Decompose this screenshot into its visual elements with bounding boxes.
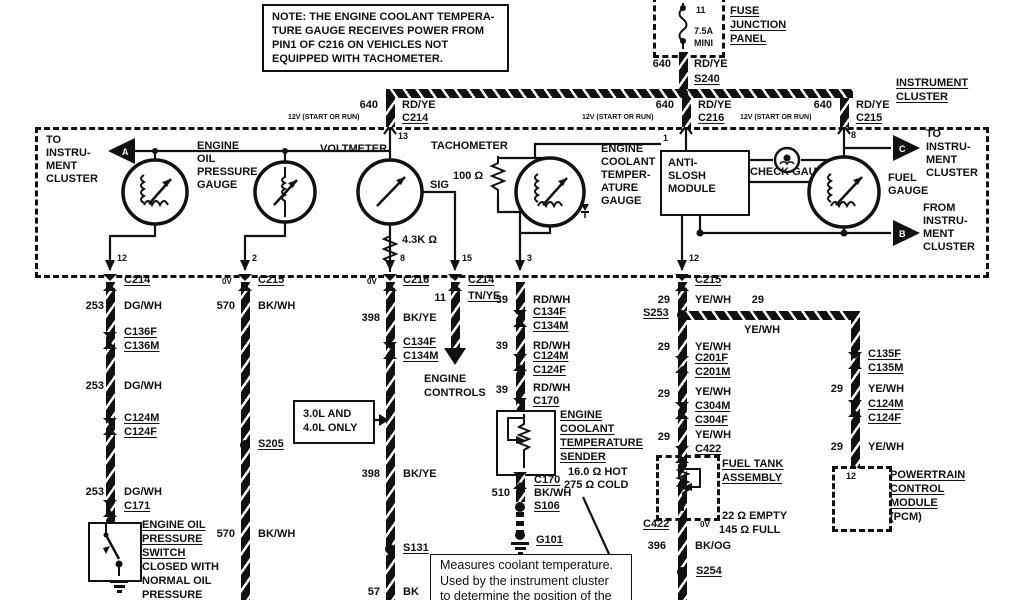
pcm-box: [832, 466, 892, 532]
connector-label: C304M: [695, 400, 730, 412]
label-line: GAUGE: [197, 179, 258, 192]
voltage-zero-label: 0V: [367, 277, 377, 286]
branch-wire-29: [682, 311, 860, 320]
diode-icon: [578, 202, 592, 218]
label-line: ENGINE: [197, 140, 258, 153]
label-line: GAUGE: [888, 185, 928, 198]
splice-label: S205: [258, 438, 284, 450]
sender-hot-value: 16.0 Ω HOT: [568, 466, 628, 478]
fuel-gauge-label: FUEL GAUGE: [888, 172, 928, 198]
wire-dotted: [516, 512, 524, 532]
wire-color: RD/WH: [533, 294, 570, 306]
wire-number: 396: [642, 540, 666, 552]
engine-controls-arrow-icon: [444, 348, 466, 365]
note-line: PIN1 OF C216 ON VEHICLES NOT: [272, 38, 494, 52]
splice-s106-dot: [515, 502, 525, 512]
wire-color: BK/YE: [403, 468, 437, 480]
label-line: TO: [46, 134, 98, 147]
connector-label: C215: [258, 274, 284, 286]
to-cluster-c-label: TO INSTRU- MENT CLUSTER: [926, 128, 978, 180]
connector-label: C124F: [868, 412, 901, 424]
triangle-c-letter: C: [899, 144, 906, 154]
fuse-icon: [675, 3, 691, 49]
wire-number: 640: [646, 99, 674, 111]
label-line: SENDER: [560, 450, 643, 464]
ground-label: G101: [536, 534, 563, 546]
triangle-b-letter: B: [899, 229, 906, 239]
fuel-tank-label: FUEL TANK ASSEMBLY: [722, 457, 783, 485]
connector-label: C214: [124, 274, 150, 286]
wire-number: 39: [484, 294, 508, 306]
anti-slosh-module-label: ANTI- SLOSH MODULE: [668, 157, 716, 196]
triangle-c-icon: [893, 135, 920, 161]
label-line: COOLANT: [560, 422, 643, 436]
wire-color: YE/WH: [695, 429, 731, 441]
wire-number: 253: [74, 300, 104, 312]
tank-empty-value: 22 Ω EMPTY: [722, 510, 787, 522]
connector-icon: [513, 310, 527, 327]
connector-icon: [103, 332, 117, 349]
wire-color: DG/WH: [124, 486, 162, 498]
wire-color: RD/YE: [698, 99, 732, 111]
label-line: 3.0L AND: [303, 407, 357, 421]
connector-label: C171: [124, 500, 150, 512]
connector-icon: [103, 274, 117, 291]
wire-color: BK/WH: [258, 300, 295, 312]
connector-label: C304F: [695, 414, 728, 426]
pin-number: 12: [117, 254, 127, 263]
fuse-panel-line: JUNCTION: [730, 18, 786, 32]
coolant-sender-label: ENGINE COOLANT TEMPERATURE SENDER: [560, 408, 643, 464]
voltage-label: 12V (START OR RUN): [740, 114, 811, 122]
connector-label: C124F: [124, 426, 157, 438]
voltage-label: 12V (START OR RUN): [288, 114, 359, 122]
wire-number: 570: [205, 300, 235, 312]
label-line: 4.0L ONLY: [303, 421, 357, 435]
wire-color: BK/WH: [258, 528, 295, 540]
label-line: MENT: [46, 160, 98, 173]
connector-label: C135M: [868, 362, 903, 374]
label-line: (PCM): [890, 510, 965, 524]
label-line: CONTROLS: [424, 386, 486, 400]
pin-number: 8: [851, 131, 856, 140]
fuel-gauge-icon: [805, 153, 883, 231]
splice-label: S253: [643, 307, 669, 319]
connector-label: C170: [533, 395, 559, 407]
connector-icon: [383, 274, 397, 291]
pin-number: 8: [400, 254, 405, 263]
label-line: INSTRU-: [46, 147, 98, 160]
connector-icon: [103, 500, 117, 517]
note-line: NOTE: THE ENGINE COOLANT TEMPERA-: [272, 10, 494, 24]
voltage-zero-label: 0V: [700, 520, 710, 529]
resistor-100ohm-label: 100 Ω: [453, 170, 483, 182]
pin-number: 2: [252, 254, 257, 263]
label-line: FUEL TANK: [722, 457, 783, 471]
wire-29-pcm: [851, 311, 860, 468]
coolant-gauge-label: ENGINE COOLANT TEMPER- ATURE GAUGE: [601, 143, 655, 208]
wire-39: [516, 282, 525, 410]
connector-icon: [238, 274, 252, 291]
callout-text: Measures coolant temperature. Used by th…: [440, 558, 613, 600]
connector-label: C134F: [403, 336, 436, 348]
fuel-tank-sender-icon: [656, 455, 714, 515]
connector-icon: [848, 400, 862, 417]
connector-icon: [383, 342, 397, 359]
from-cluster-b-label: FROM INSTRU- MENT CLUSTER: [923, 202, 975, 254]
connector-label: C124M: [533, 350, 568, 362]
connector-icon: [103, 418, 117, 435]
wire-number: 39: [484, 340, 508, 352]
wire-color: YE/WH: [695, 386, 731, 398]
label-line: ENGINE: [424, 372, 486, 386]
label-line: TEMPERATURE: [560, 436, 643, 450]
wire-color: DG/WH: [124, 300, 162, 312]
wire-number: 398: [350, 468, 380, 480]
fuse-panel-line: PANEL: [730, 32, 786, 46]
wire-number: 29: [646, 341, 670, 353]
label-line: CLOSED WITH: [142, 560, 219, 574]
connector-label: C135F: [868, 348, 901, 360]
label-line: COOLANT: [601, 156, 655, 169]
pin-number: 13: [398, 132, 408, 141]
coolant-gauge-icon: [513, 155, 587, 229]
connector-label: C422: [695, 443, 721, 455]
wire-color: YE/WH: [868, 383, 904, 395]
label-line: ENGINE: [601, 143, 655, 156]
to-cluster-a-label: TO INSTRU- MENT CLUSTER: [46, 134, 98, 186]
resistor-43k-icon: [383, 228, 397, 272]
connector-label: C136F: [124, 326, 157, 338]
label-line: MENT: [926, 154, 978, 167]
wire-number: 57: [358, 586, 380, 598]
wire-number: 11: [424, 292, 446, 304]
wire-color: RD/YE: [856, 99, 890, 111]
label-line: CLUSTER: [923, 241, 975, 254]
label-line: TEMPER-: [601, 169, 655, 182]
connector-label: C134F: [533, 306, 566, 318]
wire-color: RD/WH: [533, 382, 570, 394]
fuse-rating: 7.5A: [694, 27, 713, 36]
connector-label: C124M: [868, 398, 903, 410]
fuse-feed-wire: [679, 52, 688, 90]
label-line: MENT: [923, 228, 975, 241]
voltage-label: 12V (START OR RUN): [582, 114, 653, 122]
splice-label: S131: [403, 542, 429, 554]
voltmeter-icon: [252, 159, 318, 225]
splice-label: S106: [534, 500, 560, 512]
connector-label: C134M: [533, 320, 568, 332]
label-line: CLUSTER: [46, 173, 98, 186]
bus-drop-c215: [840, 98, 849, 127]
wire-color: YE/WH: [744, 324, 780, 336]
label-line: NORMAL OIL: [142, 574, 219, 588]
pin-number: 15: [462, 254, 472, 263]
label-line: FROM: [923, 202, 975, 215]
connector-label: C422: [643, 518, 669, 530]
label-line: ENGINE: [560, 408, 643, 422]
coolant-sender-icon: [496, 410, 552, 472]
label-line: ENGINE OIL: [142, 518, 206, 532]
connector-icon: [675, 274, 689, 291]
wire-number: 253: [74, 486, 104, 498]
connector-label: C134M: [403, 350, 438, 362]
label-line: PRESSURE: [142, 588, 219, 600]
wire-number: 29: [646, 431, 670, 443]
callout-line: Measures coolant temperature.: [440, 558, 613, 574]
label-line: INSTRU-: [926, 141, 978, 154]
note-text: NOTE: THE ENGINE COOLANT TEMPERA- TURE G…: [272, 10, 494, 66]
connector-label: C216: [403, 274, 429, 286]
wire-number: 29: [740, 294, 764, 306]
label-line: TO: [926, 128, 978, 141]
engine-controls-label: ENGINE CONTROLS: [424, 372, 486, 400]
splice-s205-dot: [240, 440, 250, 450]
sender-cold-value: 275 Ω COLD: [564, 479, 628, 491]
note-line: TURE GAUGE RECEIVES POWER FROM: [272, 24, 494, 38]
label-line: ASSEMBLY: [722, 471, 783, 485]
label-line: SLOSH: [668, 170, 716, 183]
connector-icon: [675, 356, 689, 373]
wire-color: BK/OG: [695, 540, 731, 552]
ground-g101-dot: [515, 530, 525, 540]
engine-note-label: 3.0L AND 4.0L ONLY: [303, 407, 357, 435]
connector-label: C215: [695, 274, 721, 286]
label-line: PRESSURE: [197, 166, 258, 179]
connector-label: C215: [856, 112, 882, 124]
connector-icon: [513, 354, 527, 371]
connector-label: C124M: [124, 412, 159, 424]
splice-s240-dot: [678, 88, 688, 98]
connector-label: C124F: [533, 364, 566, 376]
label-line: FUEL: [888, 172, 928, 185]
label-line: CONTROL: [890, 482, 965, 496]
callout-line: Used by the instrument cluster: [440, 574, 613, 590]
label-line: PRESSURE: [142, 532, 206, 546]
triangle-b-icon: [893, 220, 920, 246]
title-line: INSTRUMENT: [896, 76, 968, 90]
wire-color: RD/YE: [694, 58, 728, 70]
pcm-label: POWERTRAIN CONTROL MODULE (PCM): [890, 468, 965, 524]
wire-number: 510: [486, 487, 510, 499]
wire-color: YE/WH: [868, 441, 904, 453]
wire-color: DG/WH: [124, 380, 162, 392]
wire-number: 570: [205, 528, 235, 540]
sig-label: SIG: [430, 179, 449, 191]
tank-full-value: 145 Ω FULL: [719, 524, 780, 536]
label-line: POWERTRAIN: [890, 468, 965, 482]
label-line: MODULE: [890, 496, 965, 510]
fuse-size: MINI: [694, 39, 713, 48]
oil-gauge-label: ENGINE OIL PRESSURE GAUGE: [197, 140, 258, 192]
wire-color: BK: [403, 586, 419, 598]
tachometer-icon: [355, 157, 425, 227]
instrument-cluster-title: INSTRUMENT CLUSTER: [896, 76, 968, 104]
resistor-100ohm-icon: [491, 156, 505, 198]
wire-number: 29: [646, 388, 670, 400]
wire-number: 640: [643, 58, 671, 70]
wire-number: 29: [819, 383, 843, 395]
splice-s131-dot: [385, 544, 395, 554]
connector-icon: [448, 274, 462, 291]
connector-label: C201F: [695, 352, 728, 364]
pin-number: 12: [689, 254, 699, 263]
splice-s254-dot: [677, 567, 687, 577]
fuse-panel-label: FUSE JUNCTION PANEL: [730, 4, 786, 46]
label-line: INSTRU-: [923, 215, 975, 228]
label-line: ANTI-: [668, 157, 716, 170]
wire-color: BK/WH: [534, 487, 571, 499]
connector-label: C214: [468, 274, 494, 286]
connector-icon: [848, 352, 862, 369]
pin-number: 1: [663, 134, 668, 143]
ground-icon: [109, 580, 129, 595]
voltmeter-label: VOLTMETER: [320, 143, 387, 155]
wire-number: 29: [819, 441, 843, 453]
voltage-zero-label: 0V: [222, 277, 232, 286]
label-line: GAUGE: [601, 195, 655, 208]
note-line: EQUIPPED WITH TACHOMETER.: [272, 52, 494, 66]
splice-label: S240: [694, 73, 720, 85]
wire-11: [451, 282, 460, 348]
wire-253: [106, 282, 115, 522]
pin-number: 3: [527, 254, 532, 263]
label-line: SWITCH: [142, 546, 206, 560]
bus-drop-c214: [386, 98, 395, 127]
wire-color: RD/YE: [402, 99, 436, 111]
callout-line: to determine the position of the: [440, 589, 613, 600]
connector-label: C136M: [124, 340, 159, 352]
wire-number: 29: [646, 294, 670, 306]
wire-number: 39: [484, 384, 508, 396]
wire-color: BK/YE: [403, 312, 437, 324]
connector-label: C201M: [695, 366, 730, 378]
connector-label: C216: [698, 112, 724, 124]
wire-number: 640: [350, 99, 378, 111]
fuse-pin: 11: [696, 6, 706, 15]
wire-number: 640: [804, 99, 832, 111]
oil-pressure-switch-icon: [88, 522, 138, 578]
pin-number: 12: [846, 472, 856, 481]
wiring-diagram: NOTE: THE ENGINE COOLANT TEMPERA- TURE G…: [0, 0, 1024, 600]
label-line: OIL: [197, 153, 258, 166]
connector-label: C170: [534, 474, 560, 486]
oil-switch-note: CLOSED WITH NORMAL OIL PRESSURE: [142, 560, 219, 600]
wire-color: YE/WH: [695, 294, 731, 306]
oil-switch-label: ENGINE OIL PRESSURE SWITCH: [142, 518, 206, 560]
label-line: MODULE: [668, 183, 716, 196]
tachometer-label: TACHOMETER: [431, 140, 508, 152]
fuse-panel-line: FUSE: [730, 4, 786, 18]
connector-icon: [513, 472, 527, 489]
power-bus: [386, 89, 853, 98]
label-line: ATURE: [601, 182, 655, 195]
resistor-43k-label: 4.3K Ω: [402, 234, 437, 246]
bus-drop-c216: [682, 98, 691, 127]
wire-29: [678, 282, 687, 600]
wire-number: 398: [350, 312, 380, 324]
title-line: CLUSTER: [896, 90, 968, 104]
label-line: CLUSTER: [926, 167, 978, 180]
connector-label: C214: [402, 112, 428, 124]
connector-icon: [675, 402, 689, 419]
wire-number: 253: [74, 380, 104, 392]
splice-label: S254: [696, 565, 722, 577]
splice-s253-dot: [677, 310, 687, 320]
oil-pressure-gauge-icon: [119, 156, 191, 228]
